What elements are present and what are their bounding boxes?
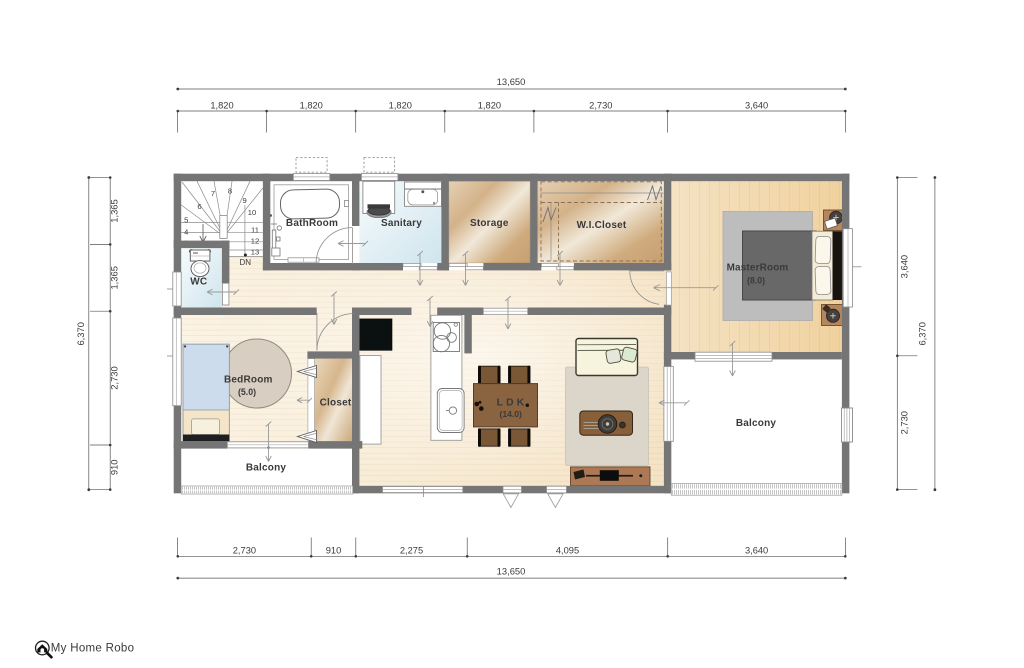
svg-text:7: 7 xyxy=(211,189,215,198)
svg-text:1,820: 1,820 xyxy=(389,101,412,111)
svg-text:2,730: 2,730 xyxy=(589,101,612,111)
svg-text:W.I.Closet: W.I.Closet xyxy=(577,220,627,231)
svg-text:2,730: 2,730 xyxy=(233,546,256,556)
svg-text:1,365: 1,365 xyxy=(109,266,120,289)
svg-text:Storage: Storage xyxy=(470,218,509,229)
svg-text:(14.0): (14.0) xyxy=(499,409,522,419)
svg-text:4,095: 4,095 xyxy=(556,546,579,556)
svg-text:(8.0): (8.0) xyxy=(747,276,765,286)
svg-text:Sanitary: Sanitary xyxy=(381,218,422,229)
svg-text:WC: WC xyxy=(190,277,207,288)
svg-text:910: 910 xyxy=(109,459,120,475)
svg-text:Balcony: Balcony xyxy=(736,418,777,429)
svg-text:6: 6 xyxy=(197,202,201,211)
svg-text:My Home Robo: My Home Robo xyxy=(51,642,135,654)
svg-text:1,820: 1,820 xyxy=(478,101,501,111)
svg-text:11: 11 xyxy=(251,226,259,235)
svg-text:1,820: 1,820 xyxy=(210,101,233,111)
svg-text:1,820: 1,820 xyxy=(300,101,323,111)
svg-text:3,640: 3,640 xyxy=(745,546,768,556)
svg-text:Closet: Closet xyxy=(320,398,352,409)
svg-text:4: 4 xyxy=(184,227,188,236)
svg-text:8: 8 xyxy=(228,186,232,195)
svg-text:9: 9 xyxy=(242,196,246,205)
svg-text:10: 10 xyxy=(248,208,256,217)
svg-text:3,640: 3,640 xyxy=(745,101,768,111)
svg-text:DN: DN xyxy=(240,258,252,267)
svg-text:2,730: 2,730 xyxy=(899,411,910,434)
svg-text:Balcony: Balcony xyxy=(246,463,287,474)
svg-text:2,275: 2,275 xyxy=(400,546,423,556)
svg-text:(5.0): (5.0) xyxy=(238,387,256,397)
svg-text:13,650: 13,650 xyxy=(497,565,526,576)
svg-text:BedRoom: BedRoom xyxy=(224,375,273,386)
svg-text:3,640: 3,640 xyxy=(899,255,910,278)
svg-text:13: 13 xyxy=(251,247,259,256)
svg-text:LDK: LDK xyxy=(497,398,528,409)
svg-text:5: 5 xyxy=(184,215,188,224)
svg-text:1,365: 1,365 xyxy=(109,199,120,222)
svg-text:6,370: 6,370 xyxy=(917,322,928,345)
svg-text:6,370: 6,370 xyxy=(75,322,86,345)
svg-text:BathRoom: BathRoom xyxy=(286,218,338,229)
svg-text:MasterRoom: MasterRoom xyxy=(727,263,789,274)
svg-text:12: 12 xyxy=(251,237,259,246)
svg-text:13,650: 13,650 xyxy=(497,76,526,87)
svg-text:910: 910 xyxy=(326,546,342,556)
svg-text:2,730: 2,730 xyxy=(109,366,120,389)
